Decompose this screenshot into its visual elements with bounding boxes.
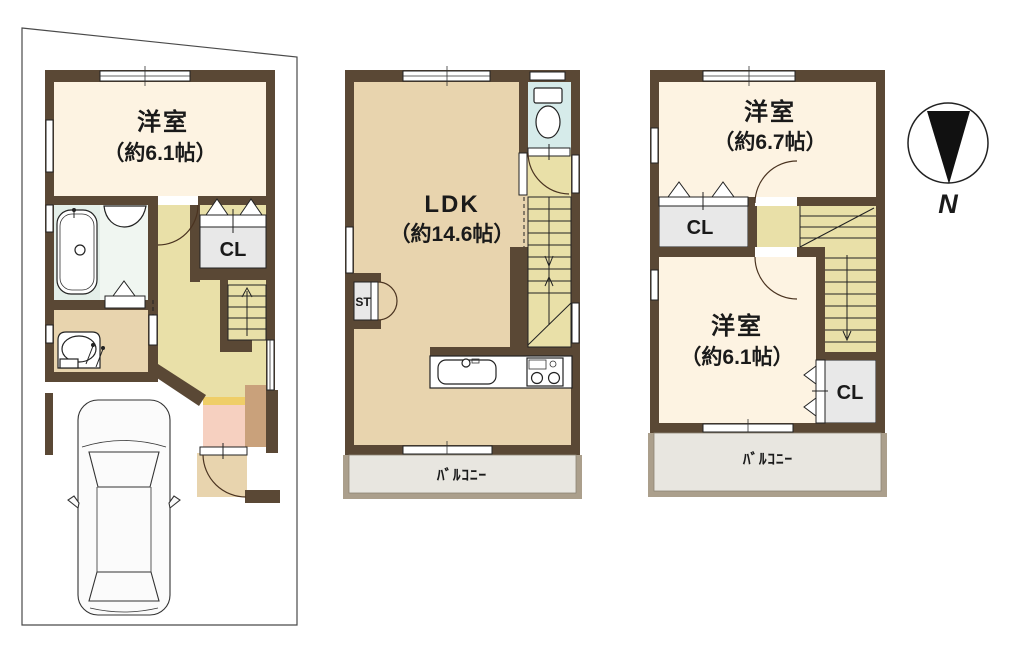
closet-b-label: CL <box>837 382 864 404</box>
window <box>572 155 579 193</box>
shoe-cabinet <box>245 385 268 447</box>
floorplan-drawing: 洋室 （約6.1帖） CL <box>0 0 1024 671</box>
door-opening <box>158 196 198 205</box>
window <box>267 340 274 390</box>
bedroom-1f <box>54 82 266 196</box>
car <box>68 400 180 615</box>
window <box>651 128 658 163</box>
floor3-plan: 洋室 （約6.7帖） CL 洋室 （約6.1帖） CL ﾊﾞﾙｺﾆｰ <box>648 66 887 497</box>
washbasin <box>58 332 105 368</box>
window <box>46 120 53 172</box>
entrance <box>203 405 245 447</box>
room-b-size: （約6.1帖） <box>680 345 793 369</box>
door-opening <box>755 197 797 206</box>
window <box>46 205 53 232</box>
stove <box>527 358 563 386</box>
storage-label: ST <box>355 295 371 309</box>
bathtub <box>57 208 97 294</box>
room-size-1f: （約6.1帖） <box>103 141 216 165</box>
room-b-label: 洋室 <box>711 312 763 340</box>
balcony-label-3f: ﾊﾞﾙｺﾆｰ <box>742 450 793 468</box>
toilet-fixture-2f <box>534 88 562 138</box>
window <box>572 303 579 343</box>
balcony-label-2f: ﾊﾞﾙｺﾆｰ <box>436 466 487 484</box>
window <box>651 270 658 300</box>
floor1-plan: 洋室 （約6.1帖） CL <box>22 28 297 625</box>
north-label: N <box>938 189 958 219</box>
faucet <box>462 359 470 367</box>
room-a-label: 洋室 <box>744 98 796 126</box>
ldk-size: （約14.6帖） <box>390 222 515 246</box>
kitchen-counter <box>430 356 572 388</box>
room-label-1f: 洋室 <box>137 108 189 136</box>
window <box>346 227 353 273</box>
door-leaf <box>519 153 527 195</box>
entrance-step <box>203 397 245 405</box>
bedroom-3f-b <box>659 257 816 423</box>
floorplan-page: 洋室 （約6.1帖） CL <box>0 0 1024 671</box>
balcony-sliding-door <box>403 446 492 454</box>
closet-a-label: CL <box>687 217 714 239</box>
north-compass: N <box>908 103 988 219</box>
storage-door-leaf <box>371 282 378 320</box>
closet-label-1f: CL <box>220 239 247 261</box>
door-opening <box>755 247 797 257</box>
ldk-label: LDK <box>424 191 479 218</box>
stairwell-3f <box>825 247 876 352</box>
floor2-plan: LDK （約14.6帖） ST ﾊﾞﾙｺﾆｰ <box>343 66 582 499</box>
room-a-size: （約6.7帖） <box>713 130 826 154</box>
washroom-folding-door <box>105 296 145 308</box>
window <box>46 325 53 343</box>
sliding-door <box>149 315 157 345</box>
window <box>530 72 565 80</box>
site-wall <box>45 393 53 455</box>
